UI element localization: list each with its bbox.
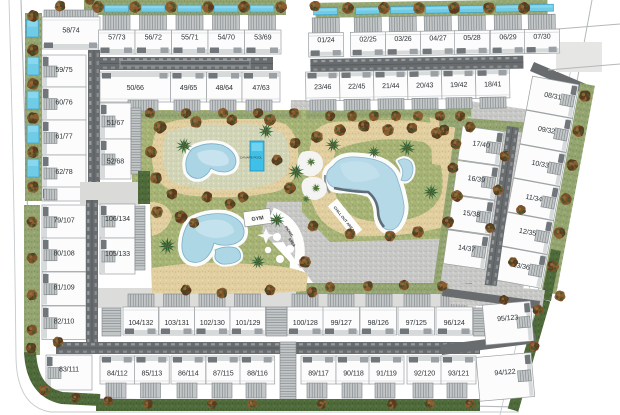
svg-text:97/125: 97/125 [406,319,427,327]
svg-text:96/124: 96/124 [444,319,465,327]
svg-text:59/75: 59/75 [55,66,72,74]
svg-text:02/25: 02/25 [359,35,377,43]
svg-text:18/41: 18/41 [484,80,502,88]
svg-text:21/44: 21/44 [382,82,400,90]
svg-text:90/118: 90/118 [343,370,364,378]
svg-text:54/70: 54/70 [218,33,235,41]
svg-text:91/119: 91/119 [376,370,397,378]
svg-text:51/67: 51/67 [107,119,124,127]
svg-text:61/77: 61/77 [55,133,72,141]
svg-text:57/73: 57/73 [108,33,125,41]
svg-text:86/114: 86/114 [178,370,199,378]
svg-text:04/27: 04/27 [429,34,447,42]
svg-text:62/78: 62/78 [55,168,72,176]
svg-text:47/63: 47/63 [252,84,269,92]
svg-text:22/45: 22/45 [348,82,366,90]
svg-text:07/30: 07/30 [533,33,551,41]
svg-text:01/24: 01/24 [317,36,335,44]
svg-text:83/111: 83/111 [59,366,79,374]
svg-text:104/132: 104/132 [128,319,153,327]
svg-text:20/43: 20/43 [416,81,434,89]
svg-text:19/42: 19/42 [450,81,468,89]
svg-text:80/108: 80/108 [53,250,74,258]
svg-text:CANAPE POOL: CANAPE POOL [240,156,262,160]
svg-text:53/69: 53/69 [254,33,271,41]
svg-text:23/46: 23/46 [314,83,332,91]
svg-text:58/74: 58/74 [62,27,79,35]
svg-text:87/115: 87/115 [213,370,234,378]
svg-text:98/126: 98/126 [368,319,389,327]
svg-text:85/113: 85/113 [142,370,163,378]
svg-text:06/29: 06/29 [499,33,517,41]
svg-text:56/72: 56/72 [145,33,162,41]
svg-text:50/66: 50/66 [127,84,144,92]
svg-text:105/133: 105/133 [105,250,130,258]
svg-text:05/28: 05/28 [463,34,481,42]
svg-text:102/130: 102/130 [200,319,225,327]
svg-text:60/76: 60/76 [55,99,72,107]
svg-text:81/109: 81/109 [53,284,74,292]
svg-text:89/117: 89/117 [308,370,329,378]
svg-text:79/107: 79/107 [53,217,74,225]
svg-text:101/129: 101/129 [235,319,260,327]
svg-text:93/121: 93/121 [448,370,469,378]
svg-text:48/64: 48/64 [216,84,233,92]
svg-text:84/112: 84/112 [107,370,128,378]
svg-text:100/128: 100/128 [293,319,318,327]
svg-text:88/116: 88/116 [247,370,268,378]
svg-text:92/120: 92/120 [414,370,435,378]
svg-text:52/68: 52/68 [107,157,124,165]
svg-text:49/65: 49/65 [180,84,197,92]
svg-text:03/26: 03/26 [394,35,412,43]
svg-text:55/71: 55/71 [181,33,198,41]
svg-text:82/110: 82/110 [54,318,75,326]
svg-text:103/131: 103/131 [164,319,189,327]
svg-text:106/134: 106/134 [105,215,130,223]
svg-text:99/127: 99/127 [331,319,352,327]
